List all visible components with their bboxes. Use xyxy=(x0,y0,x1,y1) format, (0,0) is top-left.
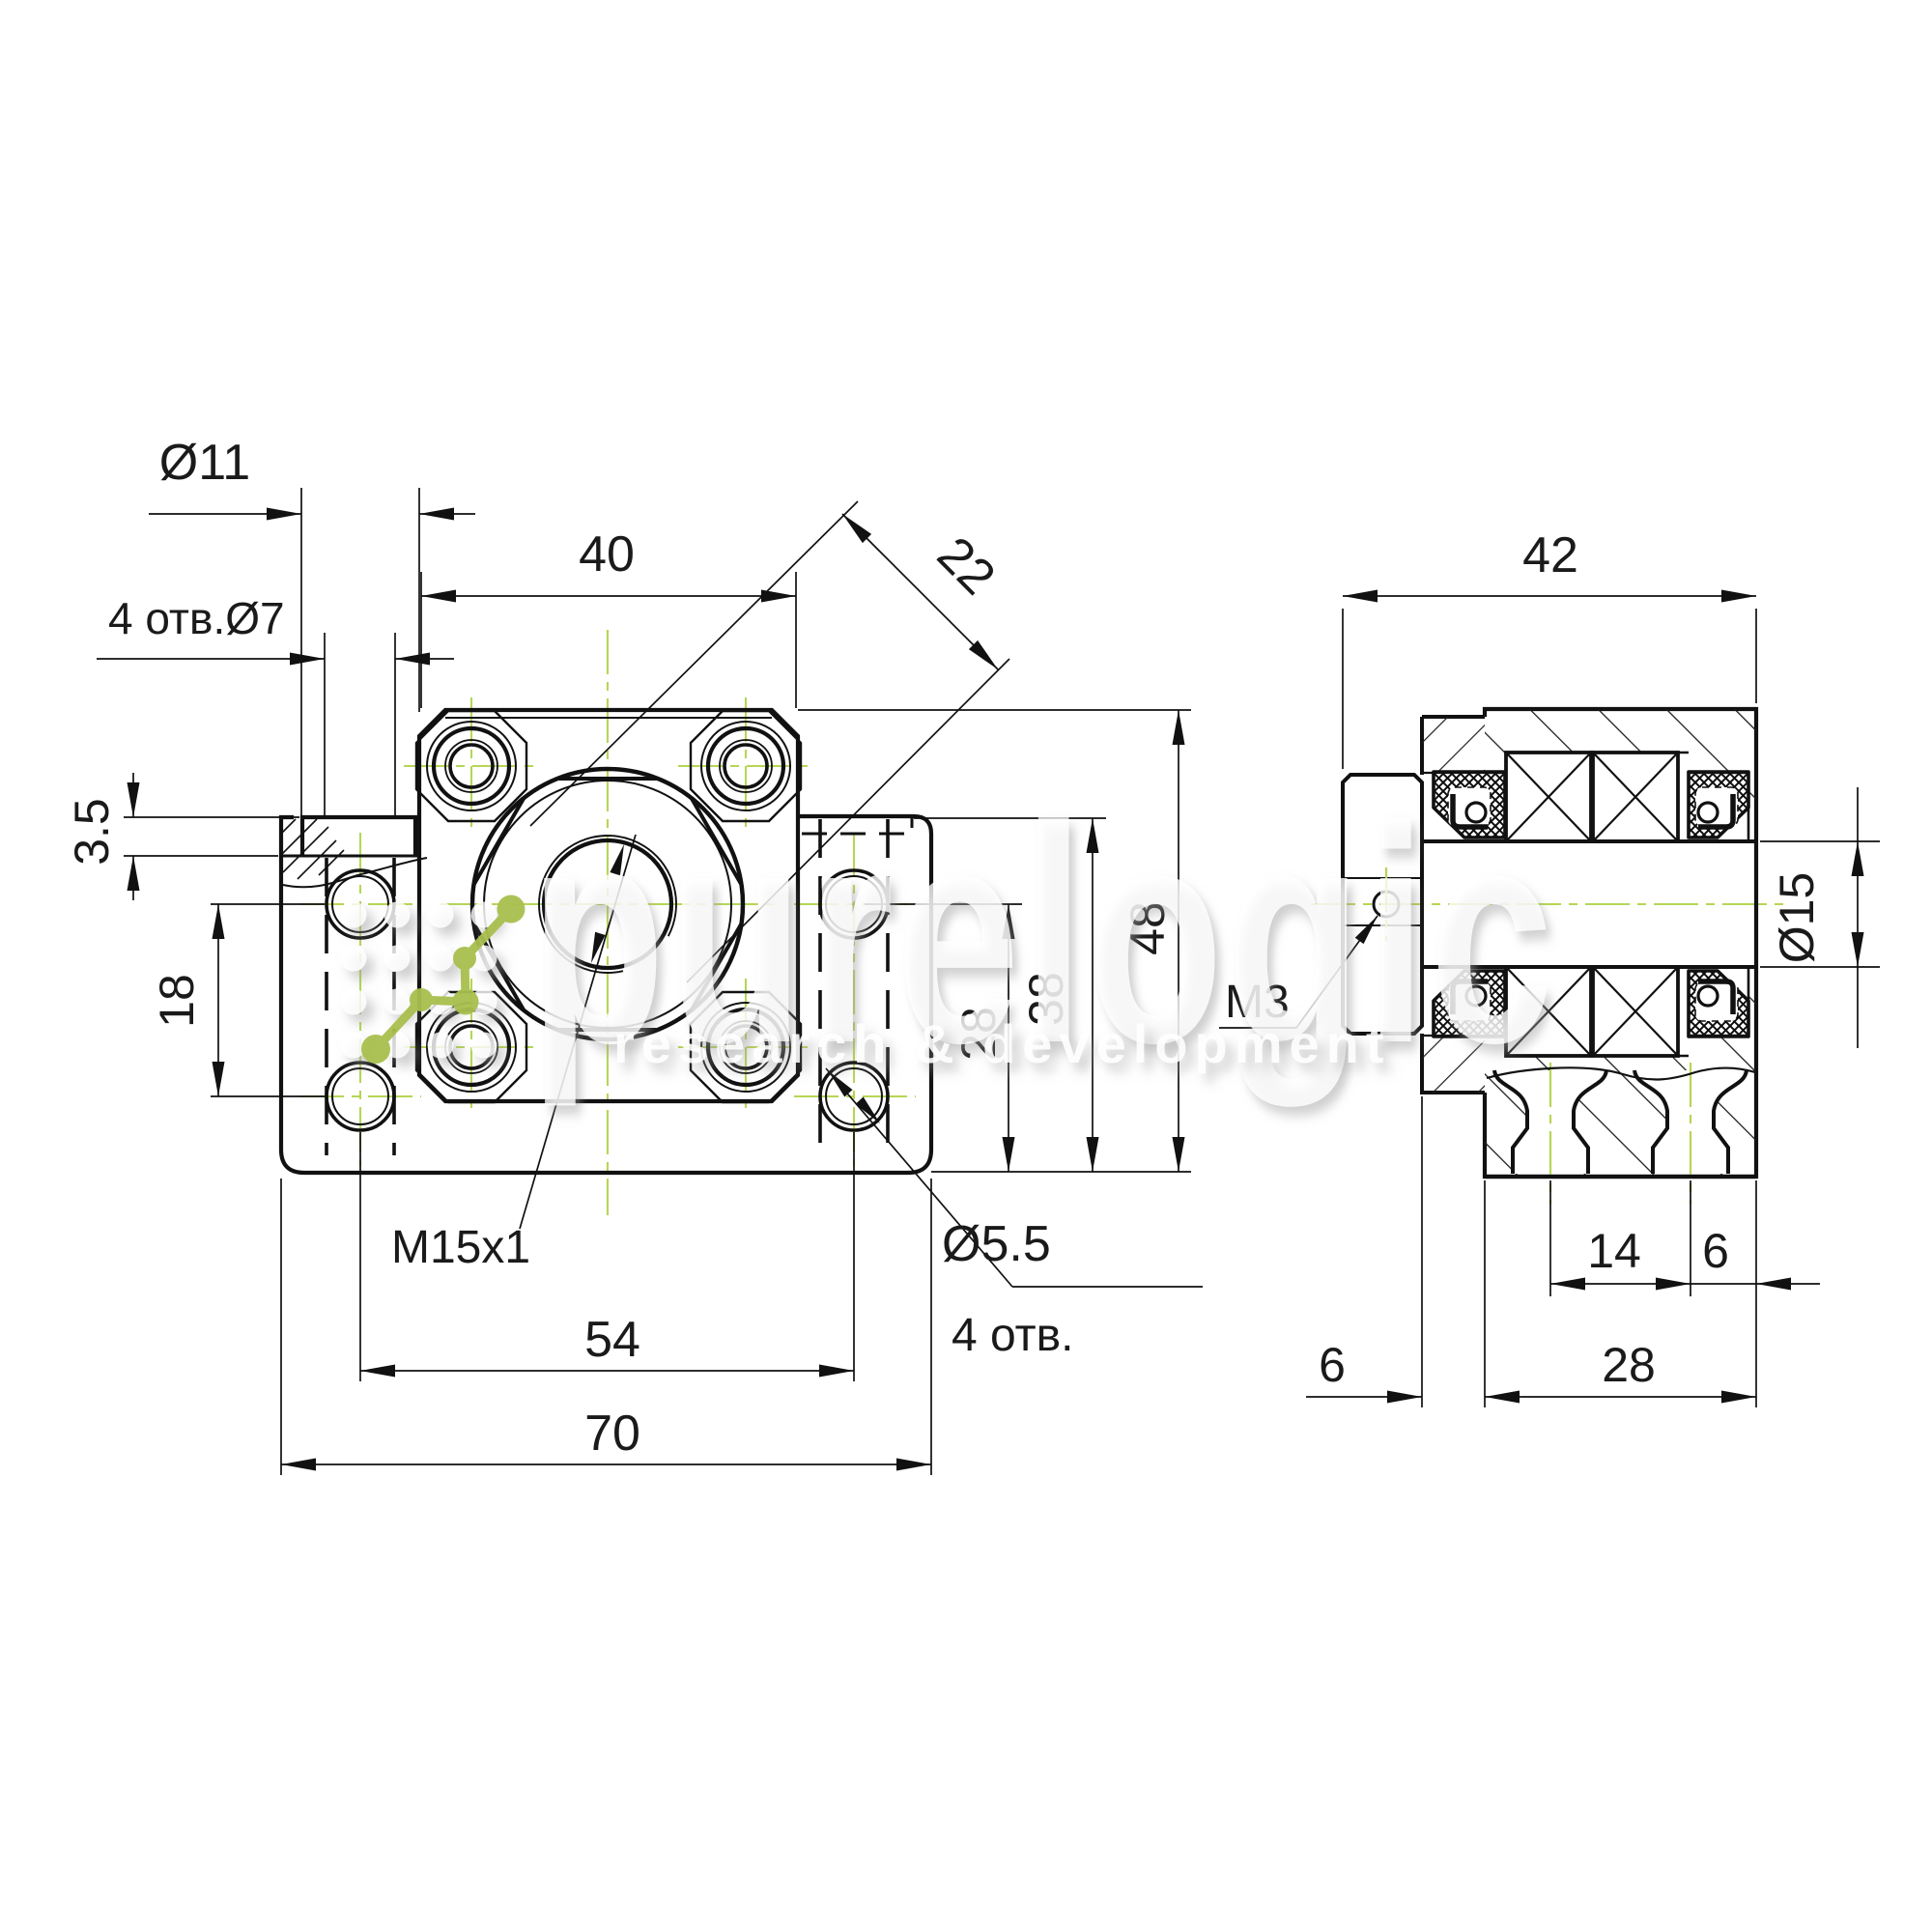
svg-text:6: 6 xyxy=(1702,1224,1729,1278)
svg-text:70: 70 xyxy=(584,1406,640,1462)
svg-text:4 отв.Ø7: 4 отв.Ø7 xyxy=(108,593,285,643)
svg-text:42: 42 xyxy=(1522,527,1578,583)
svg-text:22: 22 xyxy=(926,526,1006,606)
svg-text:54: 54 xyxy=(584,1312,640,1368)
svg-text:40: 40 xyxy=(579,526,635,582)
svg-text:Ø11: Ø11 xyxy=(159,435,250,491)
svg-text:6: 6 xyxy=(1319,1338,1346,1392)
svg-text:research & development: research & development xyxy=(613,1013,1390,1074)
svg-text:M15x1: M15x1 xyxy=(391,1222,530,1273)
svg-text:18: 18 xyxy=(150,974,204,1028)
svg-text:3.5: 3.5 xyxy=(65,798,119,866)
svg-text:28: 28 xyxy=(1602,1338,1656,1392)
svg-text:4 отв.: 4 отв. xyxy=(952,1310,1074,1361)
svg-text:Ø15: Ø15 xyxy=(1770,872,1824,964)
svg-text:Ø5.5: Ø5.5 xyxy=(942,1216,1051,1272)
svg-text:14: 14 xyxy=(1587,1224,1641,1278)
